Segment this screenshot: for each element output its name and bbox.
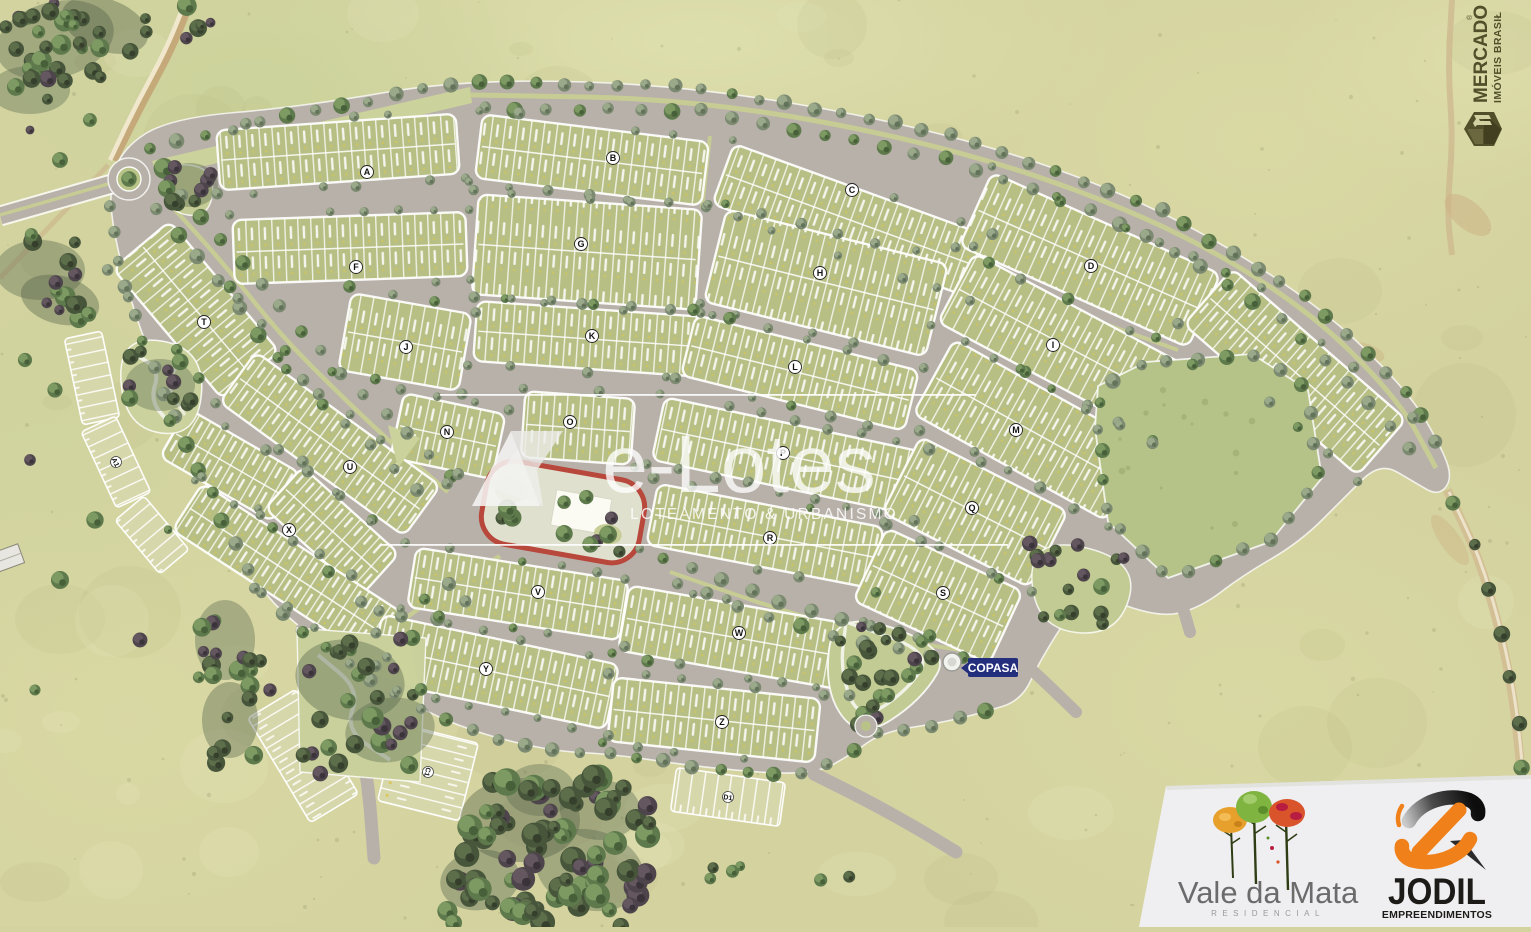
svg-text:M: M [1012,425,1020,435]
svg-text:K: K [589,331,596,341]
svg-text:B: B [610,153,617,163]
svg-text:e-Lotes: e-Lotes [602,419,876,510]
svg-text:D1: D1 [723,794,733,802]
svg-text:J: J [403,342,408,352]
svg-text:D: D [1088,261,1095,271]
svg-text:C: C [849,185,856,195]
svg-text:N: N [444,427,451,437]
svg-text:W: W [735,628,744,638]
svg-text:L: L [792,362,798,372]
svg-text:MERCADO: MERCADO [1471,5,1492,103]
svg-text:Y: Y [483,664,489,674]
svg-text:X: X [286,525,292,535]
svg-text:Q: Q [968,503,975,513]
svg-text:Vale da Mata: Vale da Mata [1178,875,1359,910]
svg-text:LOTEAMENTO & URBANISMO: LOTEAMENTO & URBANISMO [630,506,898,523]
svg-text:R: R [767,533,774,543]
svg-text:I: I [1052,340,1055,350]
svg-text:T: T [201,317,207,327]
svg-text:JODIL: JODIL [1388,871,1486,912]
svg-text:G: G [577,239,584,249]
svg-text:®: ® [1466,14,1474,20]
svg-text:S: S [940,588,946,598]
svg-text:A: A [364,167,371,177]
svg-text:COPASA: COPASA [968,661,1019,675]
svg-text:V: V [535,587,541,597]
svg-text:Z: Z [719,717,725,727]
svg-text:IMÓVEIS BRASIŁ: IMÓVEIS BRASIŁ [1491,11,1504,103]
svg-text:F: F [353,262,359,272]
svg-text:RESIDENCIAL: RESIDENCIAL [1211,909,1325,918]
svg-text:EMPREENDIMENTOS: EMPREENDIMENTOS [1382,909,1492,921]
svg-text:U: U [347,462,354,472]
svg-text:O: O [566,417,573,427]
svg-text:H: H [817,268,824,278]
